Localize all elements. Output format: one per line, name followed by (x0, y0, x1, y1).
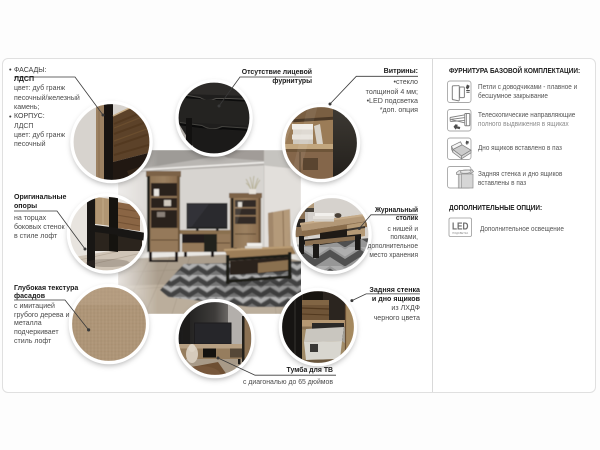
svg-text:ПОДСВЕТКА: ПОДСВЕТКА (452, 231, 469, 235)
